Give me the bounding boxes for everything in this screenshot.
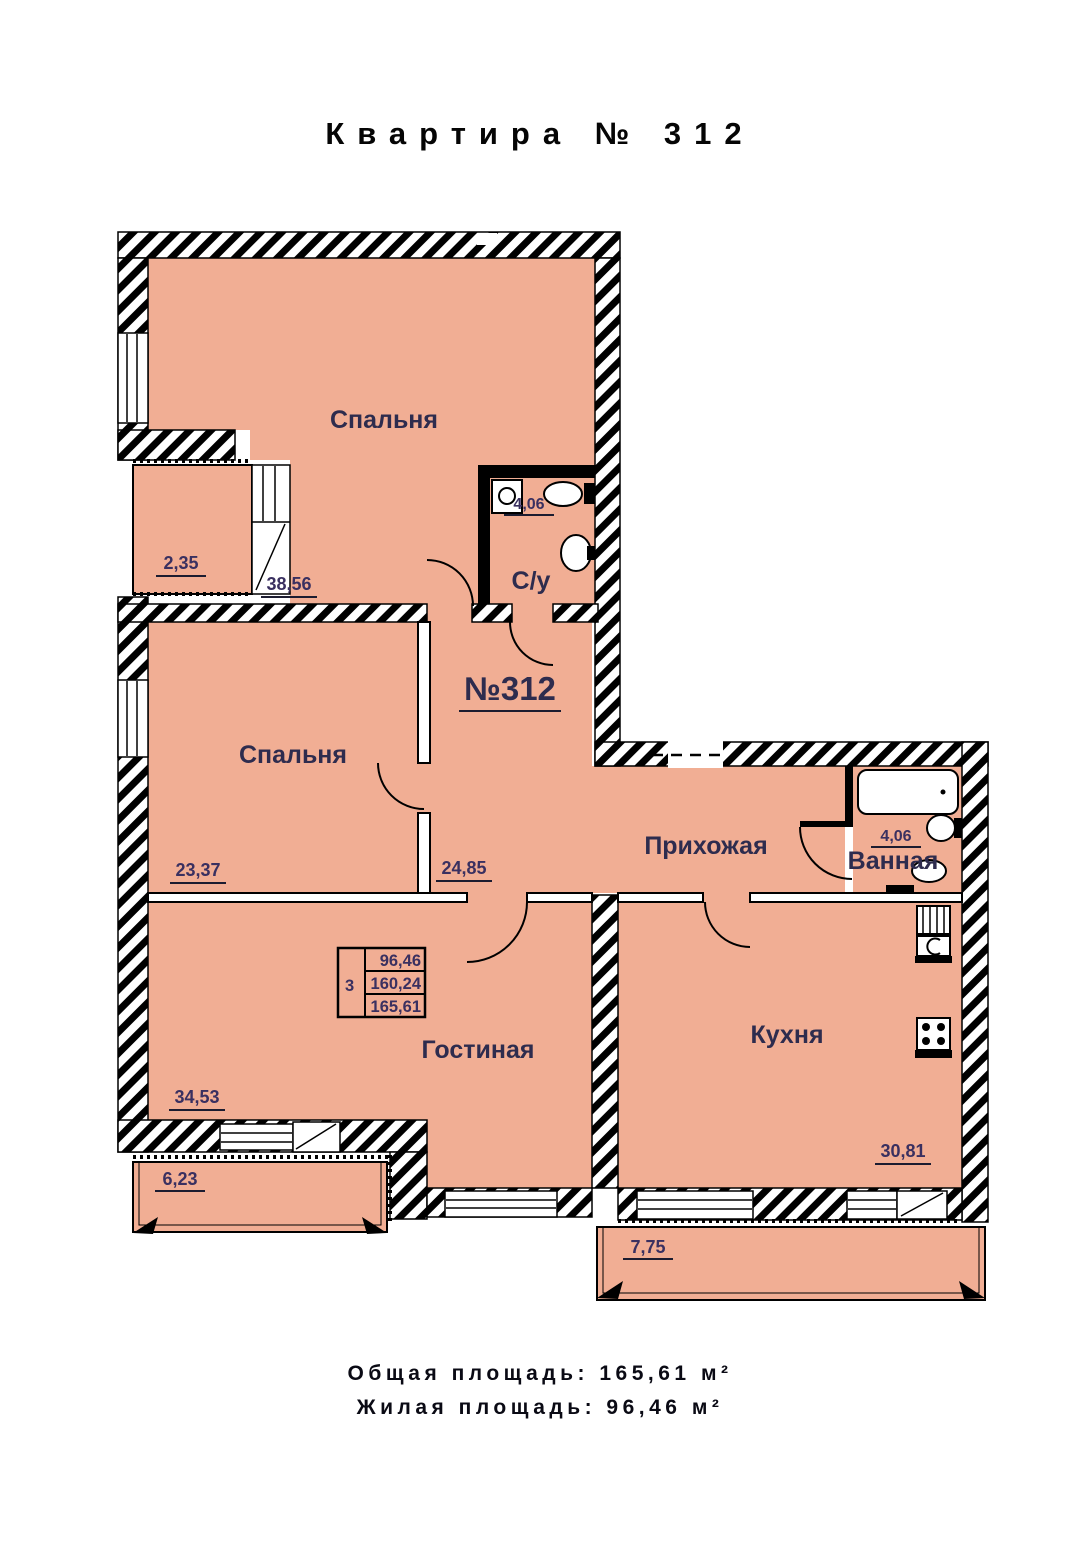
loggia-area: 2,35 [163, 553, 198, 573]
apartment-number-label: №312 [464, 670, 556, 707]
bedroom-top-area: 38,56 [266, 574, 311, 594]
wc-toilet-icon [544, 482, 582, 506]
bathroom-label: Ванная [848, 847, 939, 875]
kitchen-area: 30,81 [880, 1141, 925, 1161]
kitchen-radiator-icon [917, 906, 950, 934]
hallway-fill [618, 766, 845, 893]
bedroom-top-label: Спальня [330, 406, 438, 434]
living-jut-window [445, 1191, 557, 1217]
floor-plan-drawing: 3 96,46 160,24 165,61 Спальня 38,56 2,35… [0, 0, 1080, 1556]
living-room-label: Гостиная [422, 1036, 535, 1064]
balcony-bottom-area: 7,75 [630, 1237, 665, 1257]
loggia-fill [133, 465, 252, 594]
living-room-area: 34,53 [174, 1087, 219, 1107]
balcony-left-area: 6,23 [162, 1169, 197, 1189]
corridor-fill [430, 622, 592, 893]
window-left-top [118, 333, 148, 423]
bathroom-sink-icon [927, 815, 955, 841]
bedroom-left-label: Спальня [239, 741, 347, 769]
room-fills [133, 258, 962, 1188]
living-window [220, 1124, 293, 1150]
table-living-area: 96,46 [380, 952, 421, 970]
table-total-area: 165,61 [371, 998, 421, 1016]
kitchen-stove-icon [917, 1018, 950, 1050]
table-reduced-area: 160,24 [371, 975, 422, 993]
wc-label: С/у [512, 567, 551, 595]
bathroom-area: 4,06 [880, 828, 911, 845]
wc-basin-icon [561, 535, 591, 571]
kitchen-window-1 [637, 1191, 753, 1219]
window-left-bottom [118, 680, 148, 757]
hallway-area: 24,85 [441, 858, 486, 878]
kitchen-label: Кухня [750, 1021, 823, 1049]
wc-area: 4,06 [513, 496, 544, 513]
floor-plan-page: Квартира № 312 [0, 0, 1080, 1556]
hallway-label: Прихожая [644, 832, 767, 860]
living-area-summary: Жилая площадь: 96,46 м² [0, 1396, 1080, 1420]
total-area-summary: Общая площадь: 165,61 м² [0, 1362, 1080, 1386]
kitchen-window-2 [847, 1191, 897, 1219]
bathroom-door-leaf [800, 821, 852, 827]
table-rooms-count: 3 [345, 977, 354, 995]
bedroom-left-area: 23,37 [175, 860, 220, 880]
